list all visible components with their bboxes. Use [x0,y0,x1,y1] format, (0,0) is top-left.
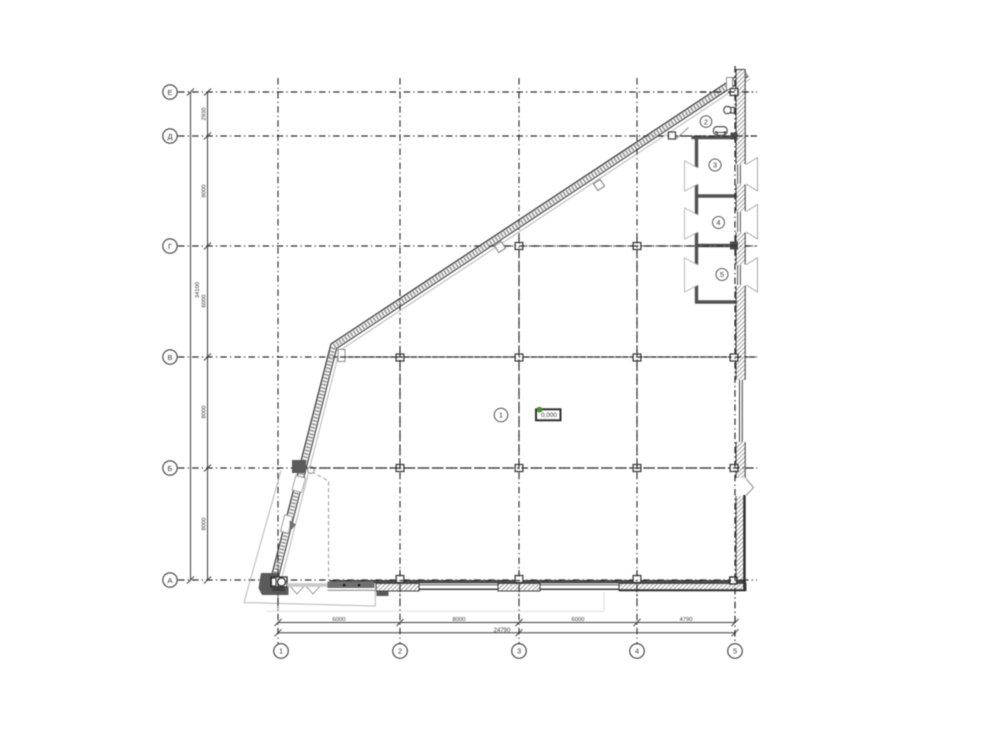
svg-text:Б: Б [168,464,173,473]
svg-text:Г: Г [168,242,172,251]
svg-text:1: 1 [499,411,503,420]
svg-text:8000: 8000 [202,185,208,198]
svg-text:6000: 6000 [572,617,585,623]
svg-text:5: 5 [720,270,724,279]
svg-text:5: 5 [733,647,737,656]
svg-text:2: 2 [398,647,402,656]
svg-text:6000: 6000 [333,617,346,623]
svg-text:4: 4 [635,647,639,656]
svg-text:8000: 8000 [453,617,466,623]
svg-text:8000: 8000 [202,518,208,531]
svg-text:34100: 34100 [195,282,201,298]
svg-text:4: 4 [716,218,720,227]
svg-text:3: 3 [713,161,717,170]
svg-text:2: 2 [704,118,708,127]
svg-text:Е: Е [167,88,172,97]
svg-text:8000: 8000 [202,406,208,419]
svg-text:4790: 4790 [680,617,693,623]
svg-text:3: 3 [517,647,521,656]
svg-text:24790: 24790 [494,628,511,634]
svg-text:В: В [167,353,172,362]
svg-text:1: 1 [279,647,283,656]
svg-text:6000: 6000 [202,295,208,308]
svg-text:0,000: 0,000 [541,412,557,419]
svg-text:А: А [167,576,172,585]
svg-text:2930: 2930 [202,108,208,121]
svg-text:Д: Д [167,132,172,141]
